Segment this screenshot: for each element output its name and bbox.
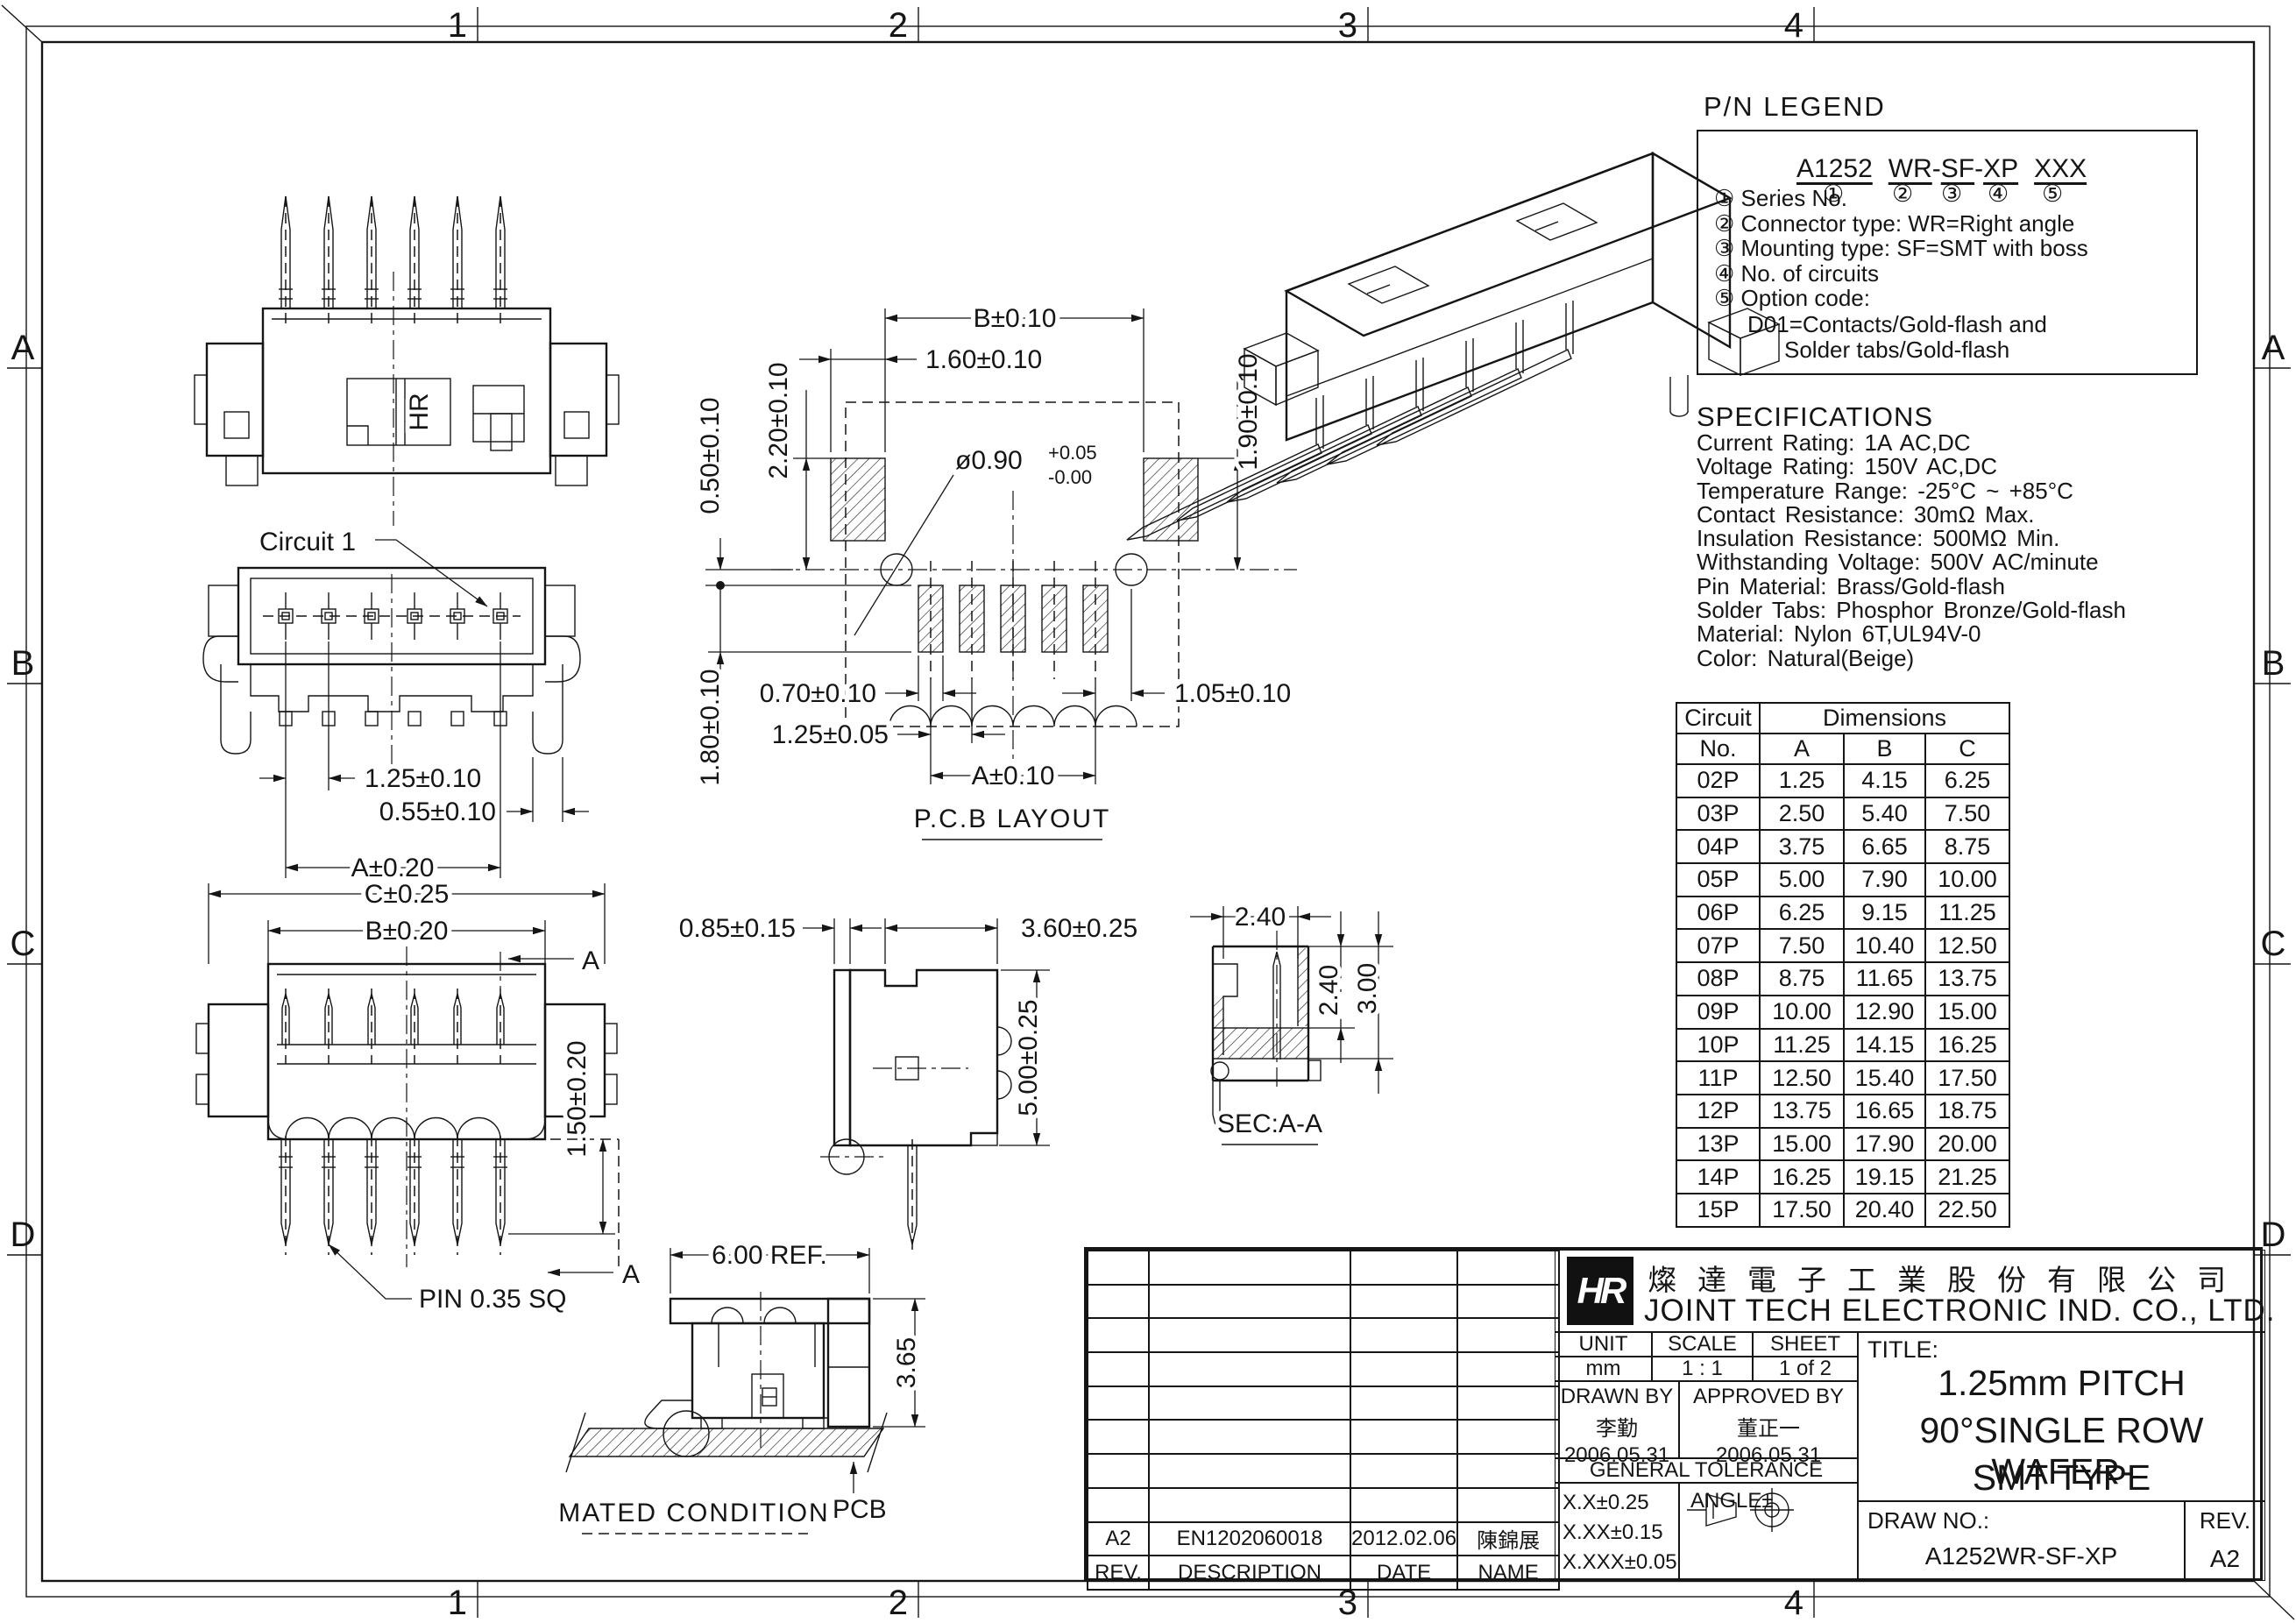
dim-hole-minus: -0.00 (1048, 466, 1092, 488)
revision-description: EN1202060018 (1149, 1522, 1350, 1556)
angle-cell: ANGLE± (1679, 1483, 1858, 1581)
revision-empty-cell (1088, 1352, 1149, 1386)
revision-empty-cell (1088, 1318, 1149, 1352)
spec-line: Solder Tabs: Phosphor Bronze/Gold-flash (1697, 599, 2126, 622)
table-cell: 12.50 (1760, 1061, 1844, 1095)
table-cell: 14.15 (1844, 1029, 1925, 1062)
table-row: 05P5.007.9010.00 (1676, 863, 2009, 897)
table-cell: 18.75 (1925, 1095, 2009, 1128)
revision-empty-cell (1088, 1386, 1149, 1421)
table-cell: 6.25 (1925, 764, 2009, 797)
dim-h1: 2.40 (1315, 965, 1343, 1016)
approved-by-name: 董正一 (1680, 1411, 1857, 1442)
pcb-layout-title: P.C.B LAYOUT (914, 804, 1111, 833)
view-pcb-layout: B±0.10 1.60±0.10 2.20±0.10 0.50±0.10 ø0.… (696, 304, 1297, 840)
part-mount: SF (1941, 154, 1974, 183)
pn-legend-item: ③ Mounting type: SF=SMT with boss (1714, 236, 2088, 261)
revision-empty-cell (1088, 1420, 1149, 1454)
part-number: A1252WR-SF-XPXXX (1796, 154, 2087, 184)
revision-empty-cell (1350, 1352, 1457, 1386)
mated-title: MATED CONDITION (558, 1499, 829, 1527)
pn-legend-title: P/N LEGEND (1704, 91, 1886, 123)
table-cell: 11.65 (1844, 962, 1925, 996)
revision-empty-cell (1149, 1318, 1350, 1352)
zone-label: C (11, 925, 36, 963)
table-cell: 09P (1676, 996, 1760, 1029)
table-cell: 06P (1676, 897, 1760, 930)
dim-pad-height: 2.20±0.10 (764, 362, 793, 478)
specs-list: Current Rating: 1A AC,DCVoltage Rating: … (1697, 431, 2126, 670)
table-cell: 15P (1676, 1194, 1760, 1227)
dim-pitch: 1.25±0.05 (772, 720, 889, 749)
revision-table: A2 EN1202060018 2012.02.06 陳錦展 REV. DESC… (1087, 1250, 1560, 1591)
zone-label: A (2262, 329, 2285, 367)
dim-depth: 3.60±0.25 (1021, 914, 1137, 943)
part-option: XXX (2034, 154, 2087, 183)
section-title: SEC:A-A (1217, 1109, 1322, 1138)
table-cell: 08P (1676, 962, 1760, 996)
scale-value-cell: 1 : 1 (1652, 1357, 1753, 1381)
table-cell: 11P (1676, 1061, 1760, 1095)
zone-label: C (2261, 925, 2286, 963)
dim-c: C±0.25 (365, 880, 450, 909)
dim-right-height: 1.90±0.10 (1234, 353, 1263, 470)
spec-line: Contact Resistance: 30mΩ Max. (1697, 503, 2126, 527)
dim-slot-width: 2.40 (1235, 903, 1286, 932)
dimensions-table: Circuit Dimensions No. A B C 02P1.254.15… (1676, 702, 2010, 1228)
table-row: 06P6.259.1511.25 (1676, 897, 2009, 930)
drawing-title-line1: 1.25mm PITCH (1859, 1363, 2264, 1404)
revision-empty-cell (1350, 1488, 1457, 1522)
table-cell: 12P (1676, 1095, 1760, 1128)
table-cell: 6.25 (1760, 897, 1844, 930)
dim-mated-width: 6.00 REF. (712, 1241, 827, 1270)
scale-value: 1 : 1 (1682, 1357, 1723, 1381)
revision-empty-cell (1088, 1285, 1149, 1319)
table-header-no: No. (1676, 734, 1760, 764)
dim-b: B±0.10 (974, 304, 1057, 333)
table-cell: 12.50 (1925, 929, 2009, 962)
tolerance-3: X.XXX±0.05 (1563, 1550, 1678, 1575)
revision-header-row: REV. DESCRIPTION DATE NAME (1088, 1556, 1559, 1590)
table-cell: 10.00 (1760, 996, 1844, 1029)
pn-legend-item: ① Series No. (1714, 186, 2088, 211)
revision-name: 陳錦展 (1457, 1522, 1559, 1556)
dim-standoff: 0.85±0.15 (679, 914, 796, 943)
table-cell: 6.65 (1844, 830, 1925, 863)
pin-callout: PIN 0.35 SQ (419, 1285, 566, 1314)
view-side: 0.85±0.15 3.60±0.25 5.00±0.25 (679, 914, 1138, 1253)
revision-empty-row (1088, 1285, 1559, 1319)
part-dash: - (1974, 154, 1983, 183)
zone-label: A (11, 329, 35, 367)
table-cell: 04P (1676, 830, 1760, 863)
zone-label: 2 (889, 6, 908, 45)
view-section-aa: 2.40 2.40 3.00 SEC:A-A (1190, 903, 1393, 1145)
table-row: 14P16.2519.1521.25 (1676, 1160, 2009, 1194)
revision-empty-row (1088, 1352, 1559, 1386)
drawing-title-line3: SMT TYPE (1859, 1457, 2264, 1499)
revision-empty-cell (1457, 1386, 1559, 1421)
table-header-c: C (1925, 734, 2009, 764)
revision-empty-cell (1350, 1454, 1457, 1488)
dim-pin-width: 0.55±0.10 (379, 797, 496, 826)
part-marking: HR (405, 393, 434, 430)
table-cell: 9.15 (1844, 897, 1925, 930)
revision-entry-row: A2 EN1202060018 2012.02.06 陳錦展 (1088, 1522, 1559, 1556)
dim-pad-width: 1.60±0.10 (925, 345, 1042, 374)
revision-empty-cell (1457, 1488, 1559, 1522)
table-cell: 02P (1676, 764, 1760, 797)
view-front: Circuit 1 1.25±0.10 (203, 528, 589, 882)
part-type: WR (1889, 154, 1932, 183)
spec-line: Insulation Resistance: 500MΩ Min. (1697, 527, 2126, 550)
revision-date: 2012.02.06 (1350, 1522, 1457, 1556)
table-cell: 13P (1676, 1128, 1760, 1161)
approved-by-cell: APPROVED BY 董正一 2006.05.31 (1679, 1381, 1858, 1458)
tolerance-2: X.XX±0.15 (1563, 1520, 1678, 1545)
view-top: HR (195, 196, 619, 526)
view-mated: 6.00 REF. 3.65 PCB MATED CONDITION (558, 1241, 925, 1534)
table-cell: 12.90 (1844, 996, 1925, 1029)
dim-hole-plus: +0.05 (1048, 442, 1097, 464)
dim-pitch: 1.25±0.10 (365, 764, 481, 793)
spec-line: Voltage Rating: 150V AC,DC (1697, 455, 2126, 478)
dim-a: A±0.20 (351, 854, 435, 882)
table-row: 15P17.5020.4022.50 (1676, 1194, 2009, 1227)
revision-header-name: NAME (1457, 1556, 1559, 1590)
table-cell: 03P (1676, 797, 1760, 831)
revision-empty-row (1088, 1454, 1559, 1488)
revision-empty-cell (1457, 1251, 1559, 1285)
dim-pad2-width: 0.70±0.10 (760, 679, 876, 708)
revision-empty-cell (1088, 1488, 1149, 1522)
drawn-by-name: 李勤 (1555, 1411, 1678, 1442)
revision-empty-cell (1149, 1386, 1350, 1421)
table-cell: 16.65 (1844, 1095, 1925, 1128)
spec-line: Pin Material: Brass/Gold-flash (1697, 575, 2126, 599)
general-tolerance-cell: GENERAL TOLERANCE (1555, 1458, 1858, 1483)
table-cell: 4.15 (1844, 764, 1925, 797)
zone-label: 3 (1338, 6, 1357, 45)
draw-no-cell: DRAW NO.: A1252WR-SF-XP (1858, 1501, 2185, 1581)
table-cell: 1.25 (1760, 764, 1844, 797)
zone-label: B (11, 644, 35, 683)
pn-legend-items: ① Series No.② Connector type: WR=Right a… (1714, 186, 2088, 311)
view-bottom: C±0.25 B±0.20 A (196, 880, 640, 1314)
revision-empty-cell (1350, 1420, 1457, 1454)
pn-option-line1: D01=Contacts/Gold-flash and (1747, 311, 2047, 338)
revision-header-description: DESCRIPTION (1149, 1556, 1350, 1590)
revision-empty-cell (1457, 1352, 1559, 1386)
table-row: 07P7.5010.4012.50 (1676, 929, 2009, 962)
revision-empty-cell (1149, 1488, 1350, 1522)
revision-empty-row (1088, 1488, 1559, 1522)
table-row: 13P15.0017.9020.00 (1676, 1128, 2009, 1161)
unit-value: mm (1586, 1357, 1621, 1381)
table-cell: 5.40 (1844, 797, 1925, 831)
zone-label: 4 (1784, 6, 1803, 45)
drawn-by-label: DRAWN BY (1555, 1385, 1678, 1409)
view-isometric (1127, 153, 1779, 540)
dim-last: 1.05±0.10 (1174, 679, 1291, 708)
zone-label: D (11, 1215, 36, 1254)
scale-label: SCALE (1668, 1332, 1737, 1357)
table-cell: 8.75 (1760, 962, 1844, 996)
tolerance-values-cell: X.X±0.25 X.XX±0.15 X.XXX±0.05 (1555, 1483, 1679, 1581)
title-label: TITLE: (1867, 1336, 1938, 1364)
table-cell: 10.40 (1844, 929, 1925, 962)
table-cell: 14P (1676, 1160, 1760, 1194)
table-cell: 13.75 (1925, 962, 2009, 996)
revision-empty-cell (1088, 1251, 1149, 1285)
revision-empty-cell (1149, 1454, 1350, 1488)
dim-mated-height: 3.65 (892, 1337, 921, 1388)
title-block: A2 EN1202060018 2012.02.06 陳錦展 REV. DESC… (1084, 1247, 2263, 1581)
table-cell: 17.90 (1844, 1128, 1925, 1161)
draw-no-value: A1252WR-SF-XP (1859, 1542, 2184, 1570)
table-row: 04P3.756.658.75 (1676, 830, 2009, 863)
pn-option-line2: Solder tabs/Gold-flash (1784, 337, 2009, 364)
zone-label: D (2261, 1215, 2286, 1254)
part-dash: - (1932, 154, 1941, 183)
dim-edge: 0.50±0.10 (696, 397, 725, 514)
sheet-label-cell: SHEET (1753, 1332, 1858, 1357)
revision-empty-cell (1149, 1352, 1350, 1386)
revision-empty-cell (1149, 1285, 1350, 1319)
revision-empty-cell (1457, 1318, 1559, 1352)
dim-a: A±0.10 (972, 762, 1055, 790)
table-cell: 15.00 (1760, 1128, 1844, 1161)
table-header-dimensions: Dimensions (1760, 703, 2009, 734)
table-row: 09P10.0012.9015.00 (1676, 996, 2009, 1029)
sheet-label: SHEET (1770, 1332, 1840, 1357)
pn-legend-item: ⑤ Option code: (1714, 286, 2088, 311)
revision-empty-cell (1350, 1386, 1457, 1421)
spec-line: Color: Natural(Beige) (1697, 647, 2126, 670)
dim-height: 1.50±0.20 (563, 1040, 592, 1157)
table-cell: 7.90 (1844, 863, 1925, 897)
table-cell: 15.00 (1925, 996, 2009, 1029)
part-circuits: XP (1983, 154, 2018, 183)
table-header-circuit: Circuit (1676, 703, 1760, 734)
table-row: 02P1.254.156.25 (1676, 764, 2009, 797)
table-cell: 17.50 (1925, 1061, 2009, 1095)
revision-empty-cell (1149, 1420, 1350, 1454)
company-logo: HR (1567, 1257, 1633, 1325)
dim-height: 5.00±0.25 (1014, 999, 1043, 1116)
spec-line: Withstanding Voltage: 500V AC/minute (1697, 550, 2126, 574)
revision-empty-cell (1350, 1251, 1457, 1285)
unit-label-cell: UNIT (1555, 1332, 1652, 1357)
sheet-value: 1 of 2 (1779, 1357, 1832, 1381)
specs-title: SPECIFICATIONS (1697, 401, 1933, 433)
spec-line: Temperature Range: -25°C ~ +85°C (1697, 479, 2126, 503)
unit-value-cell: mm (1555, 1357, 1652, 1381)
table-row: 11P12.5015.4017.50 (1676, 1061, 2009, 1095)
table-cell: 10P (1676, 1029, 1760, 1062)
part-series: A1252 (1796, 154, 1873, 183)
table-row: 08P8.7511.6513.75 (1676, 962, 2009, 996)
table-cell: 15.40 (1844, 1061, 1925, 1095)
revision-empty-row (1088, 1251, 1559, 1285)
revision-empty-cell (1457, 1420, 1559, 1454)
drawing-sheet: 1 2 3 4 1 2 3 4 A B C D A B C D HR (0, 0, 2296, 1623)
unit-label: UNIT (1579, 1332, 1628, 1357)
dim-h2: 3.00 (1353, 963, 1382, 1014)
section-marker-a-bottom: A (622, 1260, 640, 1289)
table-cell: 19.15 (1844, 1160, 1925, 1194)
pn-legend-item: ② Connector type: WR=Right angle (1714, 211, 2088, 237)
pcb-label: PCB (833, 1495, 887, 1524)
pn-legend-item: ④ No. of circuits (1714, 261, 2088, 287)
revision-empty-row (1088, 1420, 1559, 1454)
revision-empty-cell (1088, 1454, 1149, 1488)
revision-empty-cell (1350, 1318, 1457, 1352)
spec-line: Material: Nylon 6T,UL94V-0 (1697, 622, 2126, 646)
table-cell: 7.50 (1760, 929, 1844, 962)
table-cell: 7.50 (1925, 797, 2009, 831)
table-cell: 11.25 (1760, 1029, 1844, 1062)
revision-empty-cell (1350, 1285, 1457, 1319)
rev-value: A2 (2186, 1545, 2264, 1573)
revision-empty-cell (1149, 1251, 1350, 1285)
title-cell: TITLE: 1.25mm PITCH 90°SINGLE ROW WAFER-… (1858, 1332, 2265, 1501)
table-cell: 05P (1676, 863, 1760, 897)
zone-label: 2 (889, 1584, 908, 1622)
table-cell: 11.25 (1925, 897, 2009, 930)
approved-by-label: APPROVED BY (1680, 1385, 1857, 1409)
tolerance-1: X.X±0.25 (1563, 1491, 1678, 1515)
rev-label: REV. (2186, 1507, 2264, 1534)
zone-label: 4 (1784, 1584, 1803, 1622)
table-cell: 21.25 (1925, 1160, 2009, 1194)
table-cell: 3.75 (1760, 830, 1844, 863)
revision-empty-cell (1457, 1285, 1559, 1319)
revision-empty-cell (1457, 1454, 1559, 1488)
dim-depth: 1.80±0.10 (696, 669, 725, 785)
table-row: 10P11.2514.1516.25 (1676, 1029, 2009, 1062)
revision-empty-row (1088, 1318, 1559, 1352)
dim-hole: ø0.90 (955, 446, 1023, 475)
table-cell: 8.75 (1925, 830, 2009, 863)
scale-label-cell: SCALE (1652, 1332, 1753, 1357)
table-cell: 5.00 (1760, 863, 1844, 897)
revision-empty-row (1088, 1386, 1559, 1421)
drawn-by-cell: DRAWN BY 李勤 2006.05.31 (1555, 1381, 1679, 1458)
rev-cell: REV. A2 (2185, 1501, 2265, 1581)
table-cell: 2.50 (1760, 797, 1844, 831)
spec-line: Current Rating: 1A AC,DC (1697, 431, 2126, 455)
revision-header-date: DATE (1350, 1556, 1457, 1590)
third-angle-projection-icon (1680, 1484, 1811, 1536)
zone-label: 1 (448, 6, 467, 45)
circuit1-label: Circuit 1 (259, 528, 356, 556)
revision-rev: A2 (1088, 1522, 1149, 1556)
table-cell: 16.25 (1760, 1160, 1844, 1194)
table-cell: 20.40 (1844, 1194, 1925, 1227)
table-cell: 13.75 (1760, 1095, 1844, 1128)
section-marker-a-top: A (582, 946, 599, 975)
dim-b: B±0.20 (365, 917, 449, 946)
table-cell: 16.25 (1925, 1029, 2009, 1062)
draw-no-label: DRAW NO.: (1867, 1507, 1989, 1534)
table-row: 12P13.7516.6518.75 (1676, 1095, 2009, 1128)
sheet-value-cell: 1 of 2 (1753, 1357, 1858, 1381)
revision-header-rev: REV. (1088, 1556, 1149, 1590)
table-cell: 07P (1676, 929, 1760, 962)
table-row: 03P2.505.407.50 (1676, 797, 2009, 831)
table-header-a: A (1760, 734, 1844, 764)
table-cell: 17.50 (1760, 1194, 1844, 1227)
table-cell: 22.50 (1925, 1194, 2009, 1227)
zone-label: 1 (448, 1584, 467, 1622)
company-name-cn: 燦達電子工業股份有限公司 (1648, 1257, 2261, 1299)
table-cell: 20.00 (1925, 1128, 2009, 1161)
company-name-en: JOINT TECH ELECTRONIC IND. CO., LTD. (1644, 1293, 2262, 1329)
zone-label: B (2262, 644, 2285, 683)
table-cell: 10.00 (1925, 863, 2009, 897)
general-tolerance-label: GENERAL TOLERANCE (1590, 1458, 1823, 1483)
table-header-b: B (1844, 734, 1925, 764)
